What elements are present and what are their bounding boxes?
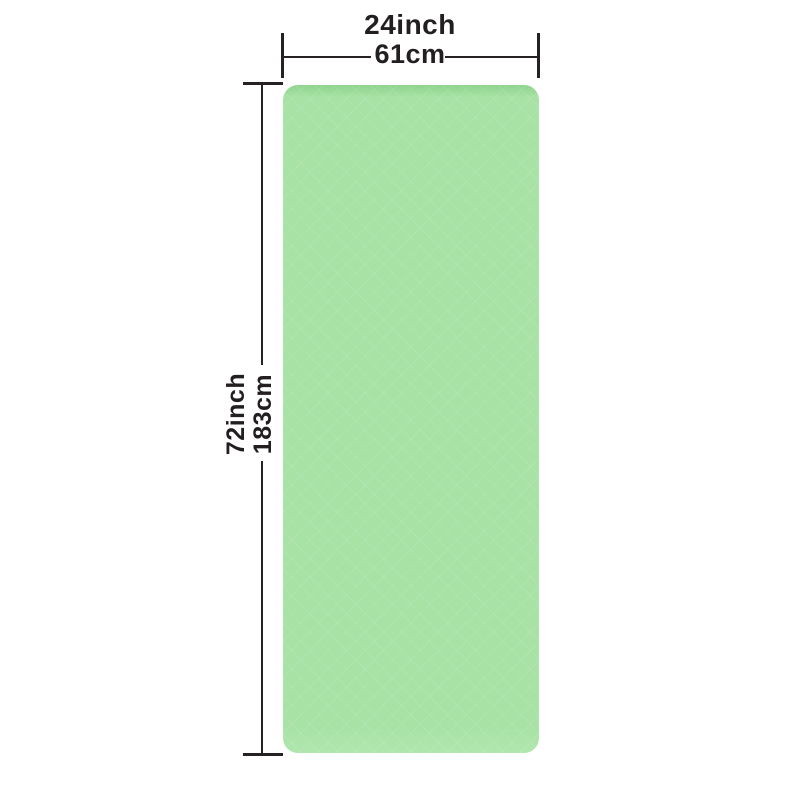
height-dimension-line-top — [261, 84, 263, 365]
width-label-inch: 24inch — [310, 10, 510, 40]
yoga-mat — [283, 85, 539, 753]
height-dimension-line-bottom — [261, 461, 263, 755]
height-dimension-tick-bottom — [243, 753, 283, 756]
height-label-cm: 183cm — [250, 344, 277, 484]
width-dimension-tick-left — [281, 33, 284, 78]
height-label-inch: 72inch — [223, 344, 250, 484]
height-label-block: 72inch 183cm — [223, 344, 279, 484]
width-label-cm: 61cm — [310, 40, 510, 69]
width-dimension-tick-right — [537, 33, 540, 78]
product-diagram-stage: 24inch 61cm 72inch 183cm — [0, 0, 800, 800]
height-dimension-tick-top — [243, 82, 283, 85]
